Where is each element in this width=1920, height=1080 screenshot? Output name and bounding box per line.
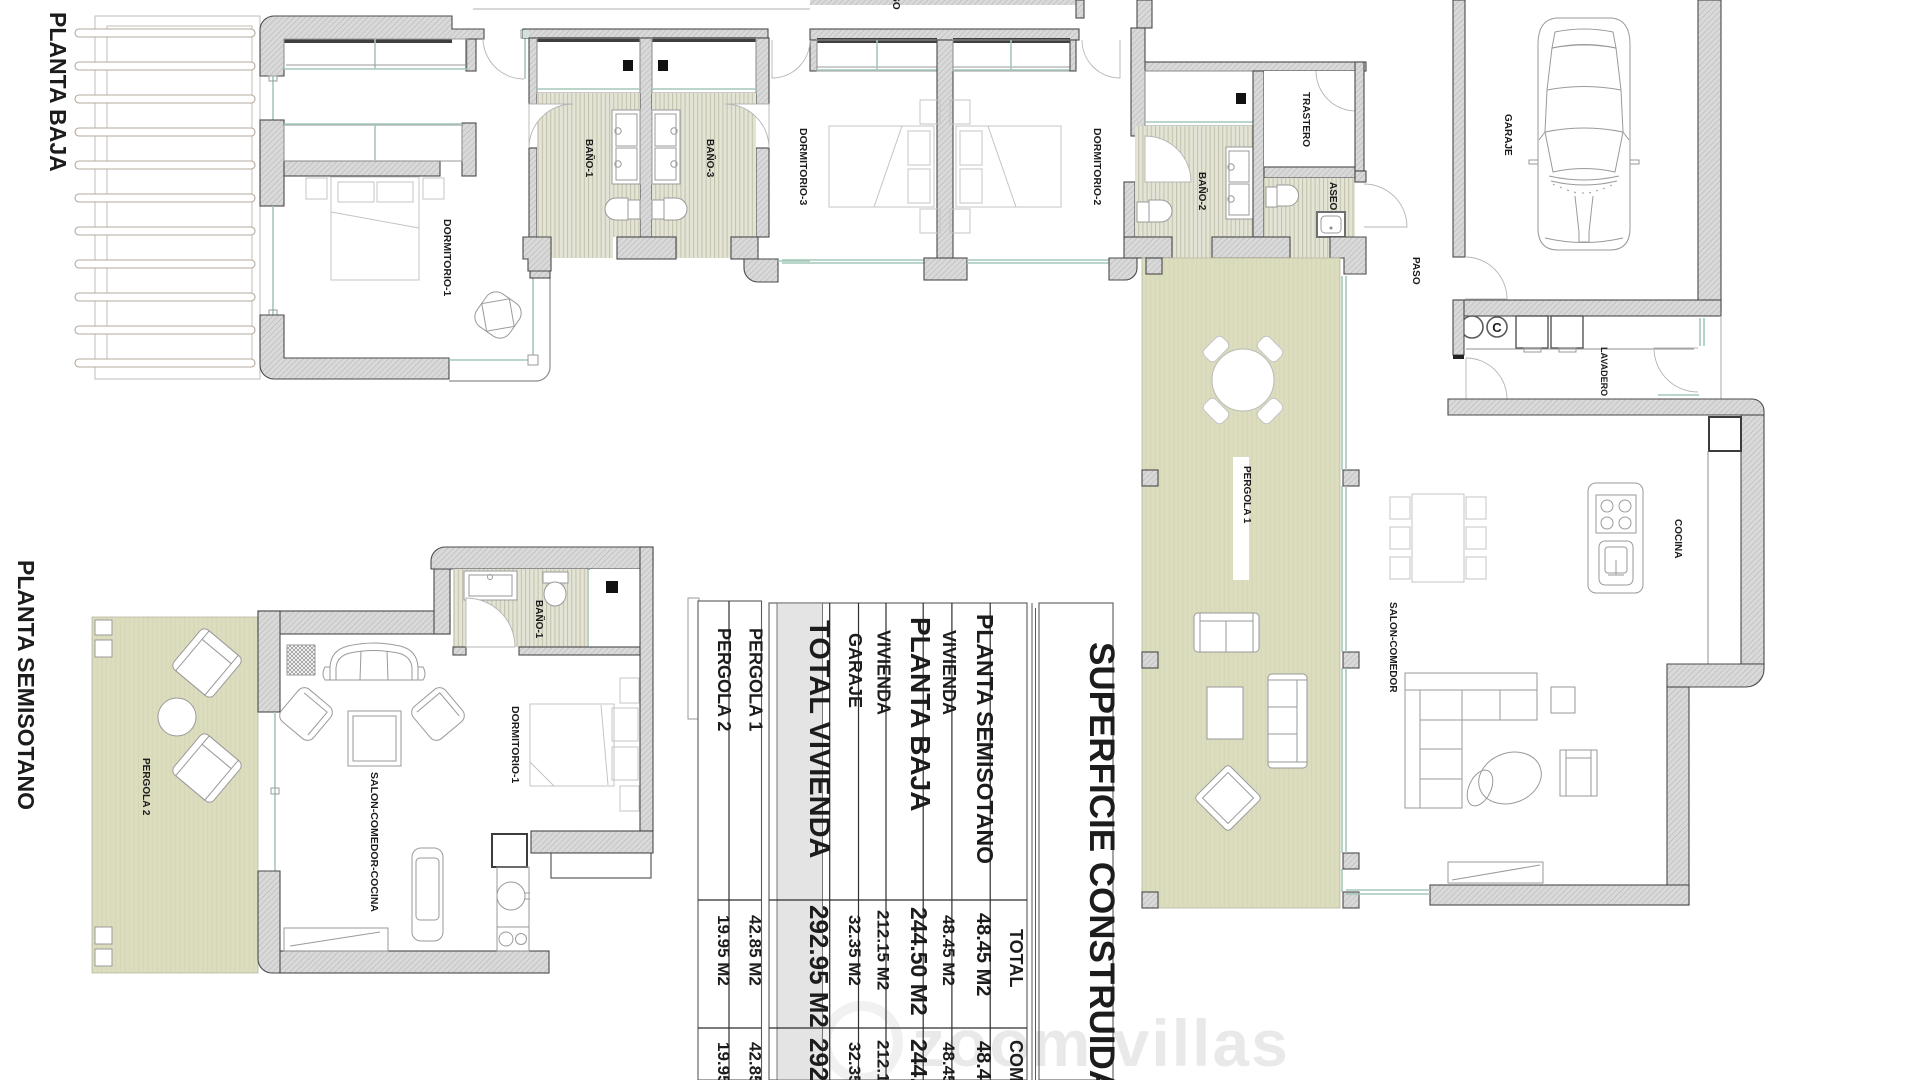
svg-text:SALON-COMEDOR: SALON-COMEDOR (1387, 602, 1398, 693)
svg-text:SALON-COMEDOR-COCINA: SALON-COMEDOR-COCINA (368, 772, 380, 912)
svg-text:DORMITORIO-3: DORMITORIO-3 (797, 128, 809, 206)
svg-text:COCINA: COCINA (1672, 519, 1683, 558)
svg-text:48.45 M2: 48.45 M2 (939, 915, 958, 986)
svg-text:GARAJE: GARAJE (1502, 114, 1513, 156)
svg-text:48.45 M2: 48.45 M2 (972, 913, 994, 996)
svg-text:42.85 M2: 42.85 M2 (746, 1042, 765, 1080)
svg-text:C: C (1492, 320, 1502, 335)
svg-text:212.15 M2: 212.15 M2 (874, 910, 893, 990)
svg-text:zoom villas: zoom villas (912, 1006, 1290, 1080)
svg-text:PASO: PASO (890, 0, 901, 10)
svg-text:42.85 M2: 42.85 M2 (746, 915, 765, 986)
svg-text:292.95 M2: 292.95 M2 (804, 905, 834, 1028)
svg-text:BAÑO-1: BAÑO-1 (583, 139, 596, 178)
svg-text:PERGOLA 1: PERGOLA 1 (746, 628, 766, 731)
svg-text:BAÑO-2: BAÑO-2 (1196, 172, 1209, 211)
svg-text:VIVIENDA: VIVIENDA (939, 630, 959, 715)
svg-text:VIVIENDA: VIVIENDA (874, 630, 894, 715)
svg-text:DORMITORIO-1: DORMITORIO-1 (509, 706, 521, 784)
svg-text:19.95 M2: 19.95 M2 (714, 1042, 733, 1080)
svg-text:19.95 M2: 19.95 M2 (714, 915, 733, 986)
svg-text:ASEO: ASEO (1327, 182, 1338, 211)
svg-text:DORMITORIO-1: DORMITORIO-1 (441, 219, 453, 297)
svg-text:BAÑO-3: BAÑO-3 (704, 139, 717, 178)
svg-text:PLANTA BAJA: PLANTA BAJA (905, 617, 936, 811)
svg-text:LAVADERO: LAVADERO (1599, 347, 1609, 396)
svg-text:244.50 M2: 244.50 M2 (906, 907, 932, 1016)
svg-text:32.35 M2: 32.35 M2 (845, 915, 864, 986)
svg-text:PLANTA SEMISOTANO: PLANTA SEMISOTANO (972, 614, 998, 864)
svg-text:PERGOLA 2: PERGOLA 2 (714, 628, 734, 731)
svg-text:PLANTA BAJA: PLANTA BAJA (45, 12, 71, 172)
svg-text:PLANTA SEMISOTANO: PLANTA SEMISOTANO (13, 560, 39, 810)
svg-text:GARAJE: GARAJE (845, 633, 865, 708)
svg-text:PERGOLA 1: PERGOLA 1 (1241, 466, 1252, 524)
svg-text:PASO: PASO (1410, 257, 1421, 285)
svg-text:TOTAL: TOTAL (1006, 929, 1026, 987)
svg-text:PERGOLA 2: PERGOLA 2 (140, 758, 151, 816)
svg-text:TRASTERO: TRASTERO (1300, 92, 1311, 147)
svg-text:DORMITORIO-2: DORMITORIO-2 (1091, 128, 1103, 206)
svg-text:TOTAL VIVIENDA: TOTAL VIVIENDA (803, 620, 835, 859)
svg-text:BAÑO-1: BAÑO-1 (533, 600, 546, 639)
